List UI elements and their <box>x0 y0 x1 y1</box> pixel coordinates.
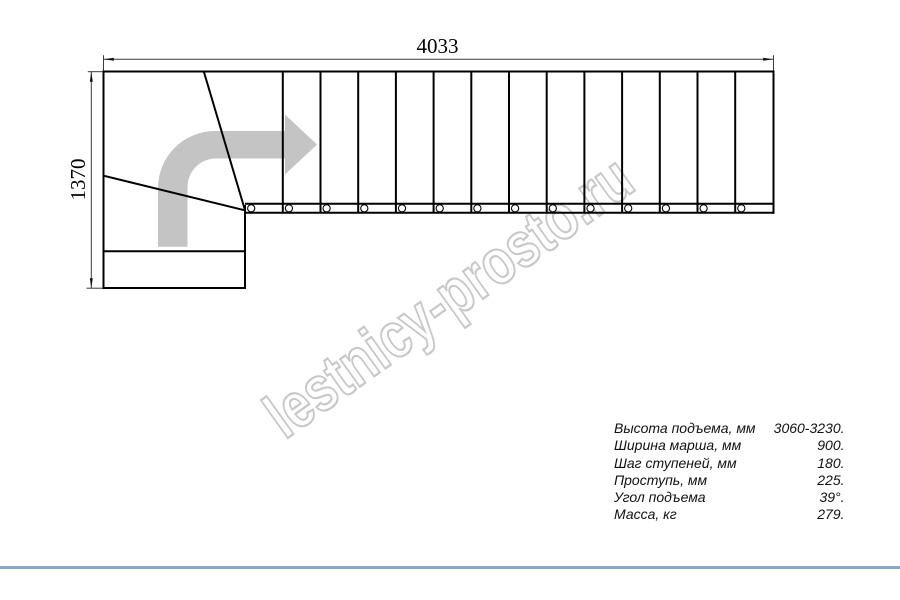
svg-text:1370: 1370 <box>66 159 90 201</box>
svg-text:4033: 4033 <box>417 34 459 58</box>
svg-text:lestnicy-prosto.ru: lestnicy-prosto.ru <box>252 142 647 452</box>
